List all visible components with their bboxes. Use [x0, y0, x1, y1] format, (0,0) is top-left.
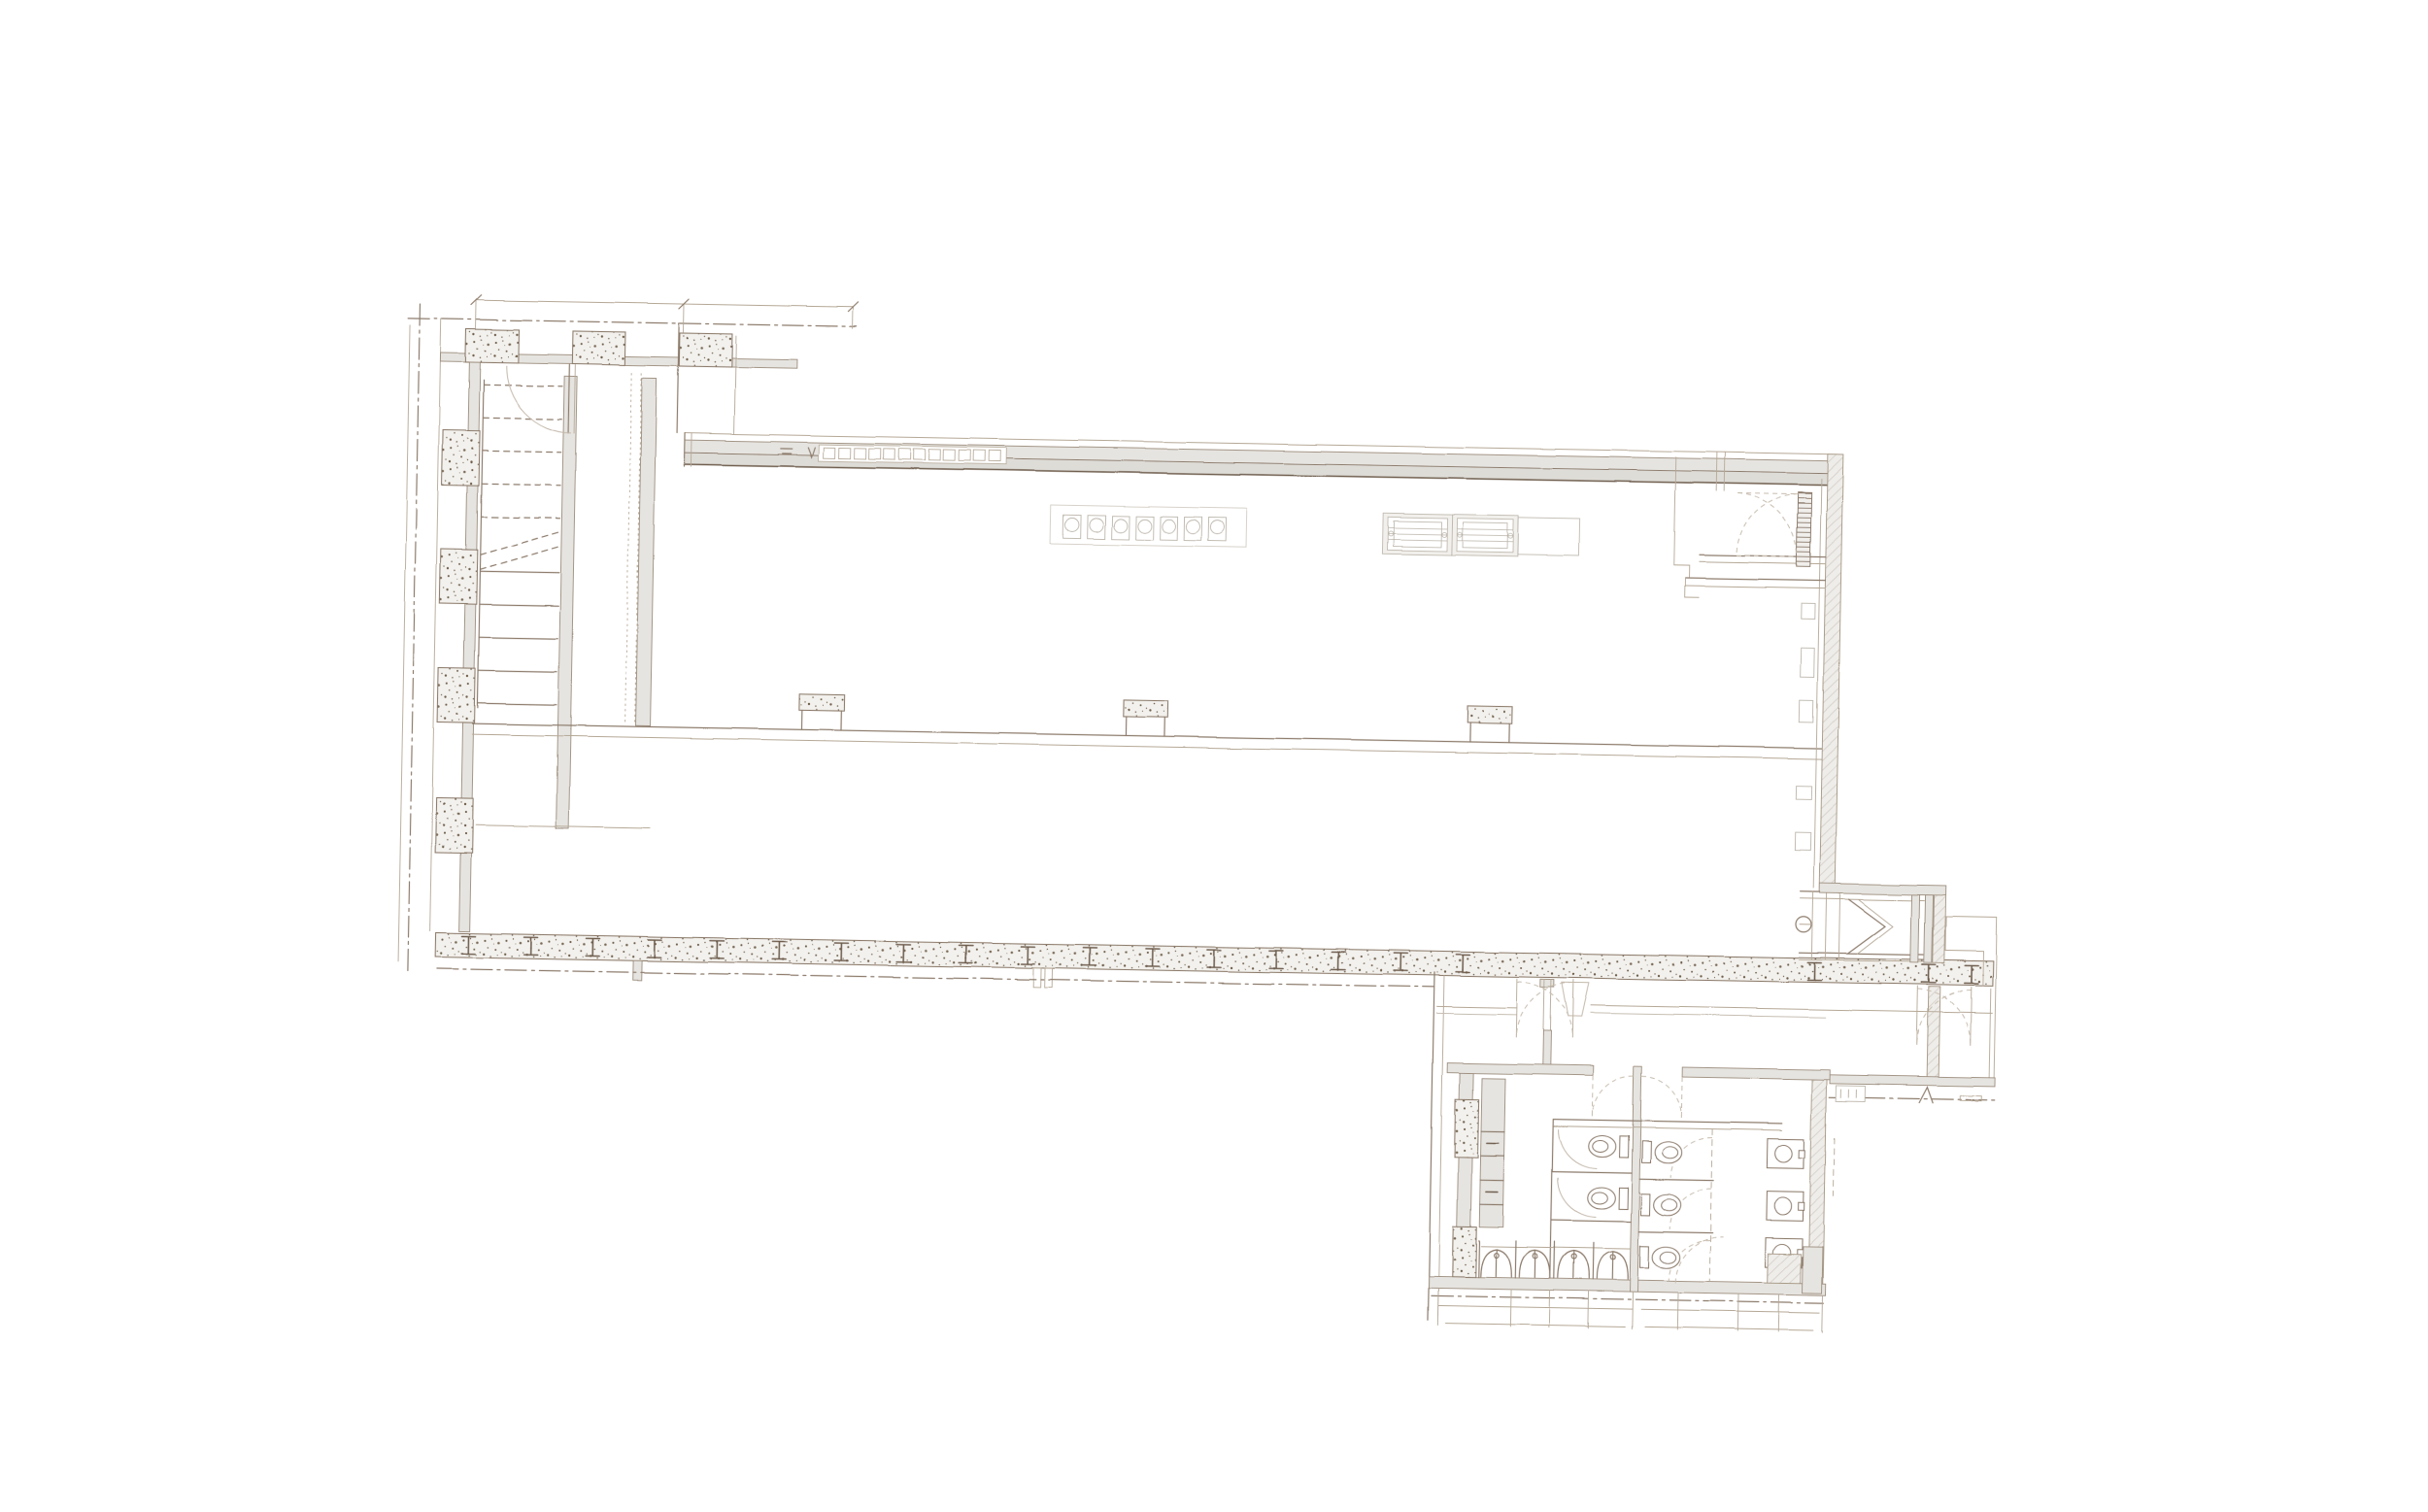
toilet [1639, 1246, 1679, 1268]
column [572, 331, 625, 365]
column [465, 329, 519, 363]
grid-column-marker [1467, 706, 1512, 743]
hall-top-wall [684, 433, 1837, 487]
column [438, 667, 476, 722]
stair-tower [396, 294, 859, 982]
side-stair [1795, 891, 1924, 961]
door-swing-arc [505, 366, 572, 433]
ceiling-fixture-row [1050, 505, 1247, 548]
toilet [1588, 1187, 1628, 1209]
stair [476, 370, 658, 829]
floor-plan-drawing [0, 0, 2428, 1512]
stair-break-line [481, 530, 559, 555]
toilet [1640, 1193, 1680, 1216]
column [435, 797, 473, 853]
restroom-bottom-wall [1429, 1276, 1826, 1294]
interior-grid-line [472, 688, 1825, 759]
grid-column-marker [1123, 699, 1168, 736]
service-column [1455, 1099, 1479, 1158]
hatched-door-panel [1797, 492, 1811, 566]
double-door-swing [1917, 986, 1972, 1045]
grille-units [1382, 513, 1580, 557]
column [679, 333, 732, 367]
dimension-line-top [471, 295, 859, 335]
dimension-brackets [1431, 1288, 1824, 1331]
main-hall [435, 429, 2003, 1005]
double-door-swing [1737, 493, 1798, 556]
ramp-symbol [1561, 983, 1589, 1018]
sink [1766, 1192, 1804, 1222]
corridor-fixtures [1837, 1086, 1981, 1104]
column [440, 550, 478, 605]
restroom-block [1428, 972, 1838, 1332]
direction-chevron [1847, 899, 1885, 955]
hall-bottom-wall [435, 932, 1994, 1004]
grid-column-marker [798, 693, 844, 730]
corridor-double-door [1516, 979, 1589, 1038]
toilet [1589, 1135, 1629, 1158]
service-column [1452, 1226, 1476, 1277]
empty-bay [1518, 518, 1580, 555]
urinals [1478, 1240, 1631, 1280]
wall-fixtures [1795, 603, 1815, 850]
plan-root [390, 294, 2009, 1335]
direction-chevron [1857, 899, 1893, 955]
floor-plan-sheet [0, 0, 2428, 1512]
toilet [1641, 1141, 1681, 1163]
column [442, 431, 480, 487]
illegible-mark [1919, 1087, 1933, 1102]
sink [1767, 1139, 1805, 1169]
